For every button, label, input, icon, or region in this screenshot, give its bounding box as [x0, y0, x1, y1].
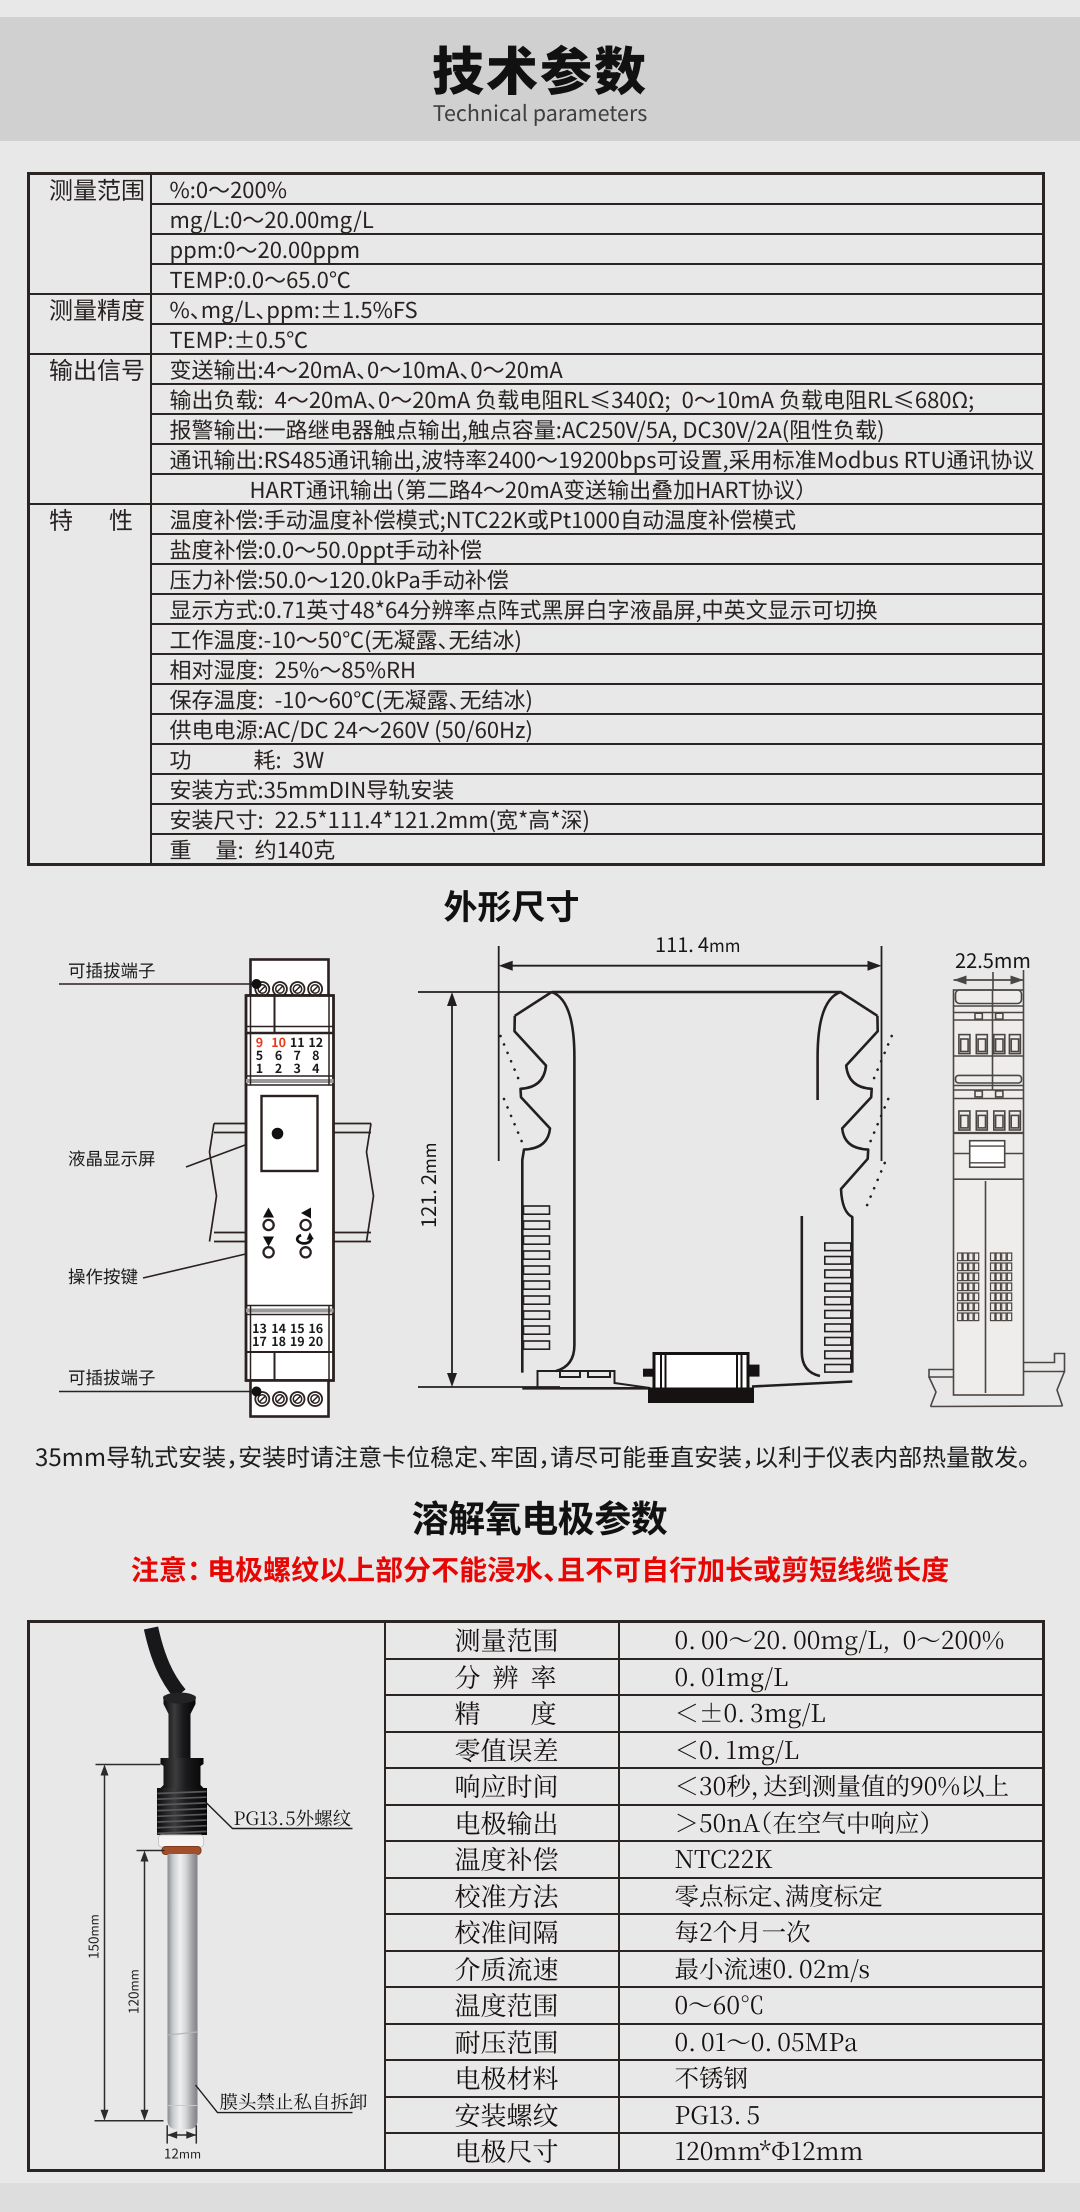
svg-text:150mm: 150mm	[83, 1914, 103, 1959]
svg-text:可插拔端子: 可插拔端子	[68, 958, 156, 983]
svg-text:操作按键: 操作按键	[68, 1264, 138, 1289]
svg-text:可插拔端子: 可插拔端子	[68, 1365, 156, 1390]
svg-text:111. 4mm: 111. 4mm	[655, 930, 740, 958]
svg-text:膜头禁止私自拆卸: 膜头禁止私自拆卸	[220, 2088, 368, 2114]
svg-text:1: 1	[256, 1058, 263, 1077]
svg-text:17: 17	[252, 1331, 267, 1350]
svg-text:12mm: 12mm	[164, 2142, 201, 2162]
svg-text:3: 3	[294, 1058, 301, 1077]
svg-text:2: 2	[275, 1058, 282, 1077]
svg-text:20: 20	[308, 1331, 323, 1350]
svg-text:4: 4	[312, 1058, 320, 1077]
svg-text:120mm: 120mm	[123, 1969, 143, 2014]
svg-text:液晶显示屏: 液晶显示屏	[68, 1146, 156, 1171]
svg-text:121. 2mm: 121. 2mm	[413, 1143, 442, 1228]
svg-text:22.5mm: 22.5mm	[955, 945, 1031, 974]
svg-text:PG13. 5外螺纹: PG13. 5外螺纹	[234, 1805, 352, 1831]
svg-text:19: 19	[290, 1331, 305, 1350]
svg-text:18: 18	[271, 1331, 286, 1350]
